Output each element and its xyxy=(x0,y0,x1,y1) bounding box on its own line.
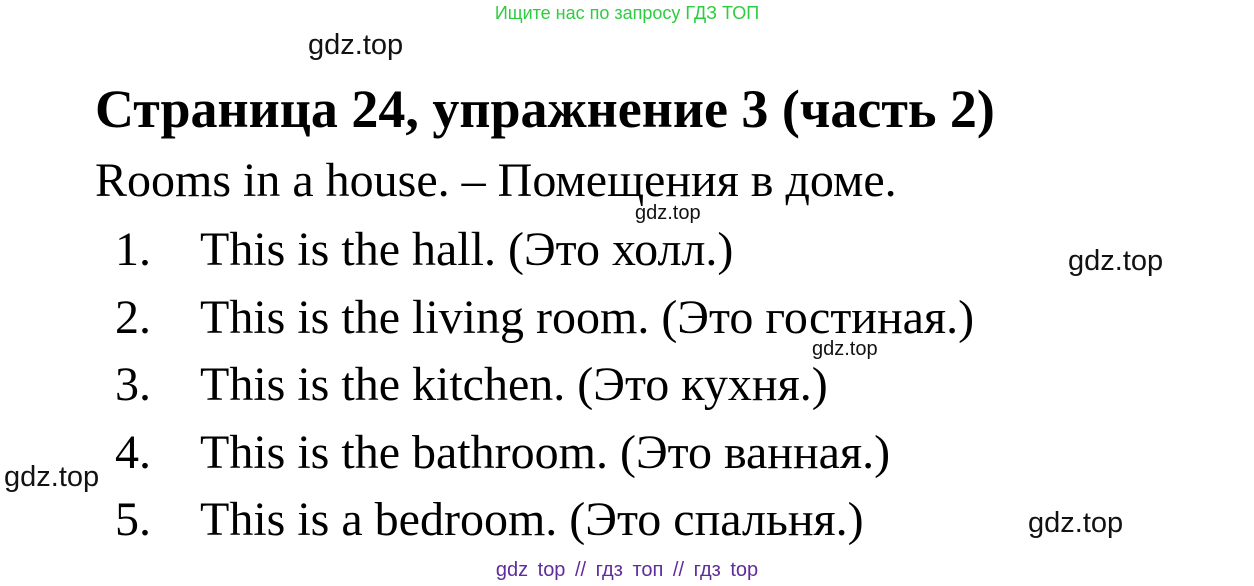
list-item: 5.This is a bedroom. (Это спальня.) xyxy=(95,492,864,548)
answer-page: Ищите нас по запросу ГДЗ ТОП gdz.top Стр… xyxy=(0,0,1254,586)
list-item: 4.This is the bathroom. (Это ванная.) xyxy=(95,425,890,481)
list-item-number: 2. xyxy=(115,290,200,346)
list-item: 1.This is the hall. (Это холл.) xyxy=(95,222,733,278)
list-item-text: This is the bathroom. (Это ванная.) xyxy=(200,426,890,479)
list-item-text: This is the kitchen. (Это кухня.) xyxy=(200,358,828,411)
list-item-number: 5. xyxy=(115,492,200,548)
watermark-right: gdz.top xyxy=(1068,245,1163,278)
list-item-text: This is the hall. (Это холл.) xyxy=(200,223,733,276)
list-item: 3.This is the kitchen. (Это кухня.) xyxy=(95,357,828,413)
list-item-number: 1. xyxy=(115,222,200,278)
watermark-bottom-left: gdz.top xyxy=(4,461,99,494)
watermark-mid-lower: gdz.top xyxy=(812,338,878,361)
watermark-top-left: gdz.top xyxy=(308,29,403,62)
exercise-subtitle: Rooms in a house. – Помещения в доме. xyxy=(95,155,897,208)
promo-banner: Ищите нас по запросу ГДЗ ТОП xyxy=(0,3,1254,24)
list-item-text: This is the living room. (Это гостиная.) xyxy=(200,291,974,344)
list-item-text: This is a bedroom. (Это спальня.) xyxy=(200,493,864,546)
list-item-number: 4. xyxy=(115,425,200,481)
list-item-number: 3. xyxy=(115,357,200,413)
watermark-bottom-right: gdz.top xyxy=(1028,507,1123,540)
page-title: Страница 24, упражнение 3 (часть 2) xyxy=(95,80,995,139)
footer-links: gdz top // гдз топ // гдз top xyxy=(0,559,1254,582)
